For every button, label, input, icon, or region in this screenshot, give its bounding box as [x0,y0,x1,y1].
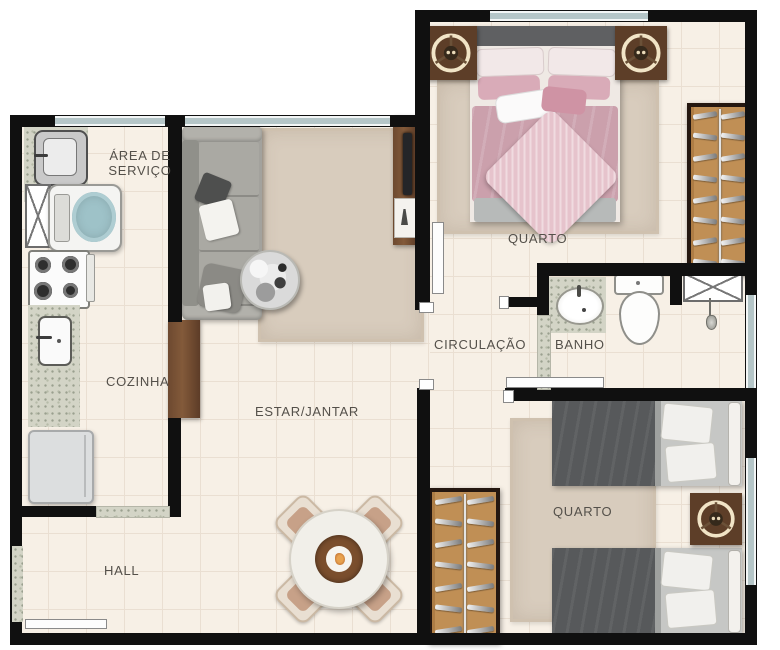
wall-living-bedroom1 [415,122,430,310]
label-area-servico: ÁREA DE SERVIÇO [98,148,182,178]
hanger-icon [466,496,493,505]
floor-plan: ÁREA DE SERVIÇO COZINHA ESTAR/JANTAR HAL… [0,0,780,650]
shower-head-icon [704,298,716,332]
kitchen-drain-icon [57,339,61,343]
hanger-icon [721,153,745,162]
bedroom2-wardrobe [428,488,500,643]
hanger-icon [693,195,717,204]
window-living [185,116,390,126]
bedroom2-door [506,377,604,388]
kitchen-faucet-icon [36,336,52,339]
label-estar-jantar: ESTAR/JANTAR [255,404,359,419]
tv-icon [403,133,412,195]
burner-icon [35,257,51,273]
lamp-icon [429,31,473,75]
stove [28,250,90,309]
door-jamb [419,379,434,390]
burner-icon [63,283,78,298]
hanger-icon [466,605,493,613]
hanger-icon [434,605,461,613]
washer-lid-icon [72,192,116,242]
label-area-servico-line2: SERVIÇO [108,163,171,178]
hanger-icon [434,561,461,569]
window-bedroom2 [746,458,756,585]
hanger-icon [693,133,717,141]
laundry-sink-basin [43,138,77,176]
lamp-icon [619,31,663,75]
bath-faucet-icon [577,285,581,297]
hanger-icon [466,583,493,592]
hanger-icon [693,237,717,246]
wall-bottom [10,633,757,645]
wall-kitchen-bottom [10,506,96,517]
wall-bath-left [537,263,549,318]
single-bed [552,548,742,633]
label-banho: BANHO [555,337,605,352]
fridge [28,430,94,504]
pillow [660,402,714,444]
bath-drain-icon [582,308,586,312]
wall-shower-divider [670,271,682,305]
pillow [548,47,617,77]
label-quarto1: QUARTO [508,231,567,246]
label-circulacao: CIRCULAÇÃO [434,337,526,352]
hanger-icon [693,153,717,162]
double-bed [470,26,620,222]
hanger-icon [721,111,745,120]
sofa-back [182,140,199,306]
pillow [476,47,545,77]
coffee-table [240,250,300,310]
kitchen-sink [38,316,72,366]
bedroom1-door [432,222,444,294]
headboard [466,26,624,46]
entry-door [25,619,107,629]
laundry-faucet-icon [34,154,48,157]
wall-bath-stub [505,297,549,307]
label-quarto2: QUARTO [553,504,612,519]
fridge-door-line [84,435,86,497]
sideboard-cabinet [168,320,200,418]
hall-wall-strip [12,546,23,622]
headboard [728,402,741,486]
hanger-icon [466,539,493,548]
wall-step [415,10,430,122]
headboard [728,550,741,633]
label-area-servico-line1: ÁREA DE [109,148,170,163]
door-jamb [499,296,509,309]
label-cozinha: COZINHA [106,374,169,389]
single-bed [552,400,742,486]
bedroom1-closet [687,103,751,275]
hanger-icon [693,217,717,225]
burner-icon [62,256,79,273]
window-bedroom1 [490,11,648,21]
hanger-icon [693,111,717,120]
pillow [664,442,717,483]
door-jamb [419,302,434,313]
window-bathroom [746,295,756,388]
centerpiece-icon [335,553,345,565]
bath-sink [556,287,604,325]
bed-blanket [552,548,661,633]
pillow [660,550,713,591]
pillow [665,589,718,629]
hanger-icon [721,237,745,246]
hanger-icon [434,518,461,526]
closet-hangers [435,498,462,633]
dining-table [289,509,389,609]
door-jamb [503,390,514,403]
closet-hangers [693,113,717,265]
closet-hangers [721,113,745,265]
hanger-icon [434,539,461,548]
washing-machine [48,184,122,252]
hanger-icon [721,175,745,183]
lamp-icon [695,498,737,540]
stove-handle [86,254,95,302]
wall-kitchen-divider-low [168,418,181,517]
bed-blanket [552,400,661,486]
tv-rack [393,115,417,245]
sofa-pillow-white [202,282,231,311]
wall-bedroom1-bottom [537,263,757,276]
window-service-area [55,116,165,126]
washer-panel [54,194,70,242]
laundry-sink [34,130,88,186]
hanger-icon [693,175,717,183]
hanger-icon [466,518,493,526]
hanger-icon [434,583,461,592]
hanger-icon [721,217,745,225]
toilet-button-icon [636,281,640,285]
kitchen-threshold [96,506,170,518]
vase-icon [401,209,408,225]
closet-hangers [467,498,494,633]
hanger-icon [434,496,461,505]
hanger-icon [721,195,745,204]
label-hall: HALL [104,563,139,578]
hanger-icon [466,561,493,569]
tv-shelf [394,198,416,238]
burner-icon [34,282,52,300]
hanger-icon [721,133,745,141]
wall-bedroom2-left [417,388,430,638]
